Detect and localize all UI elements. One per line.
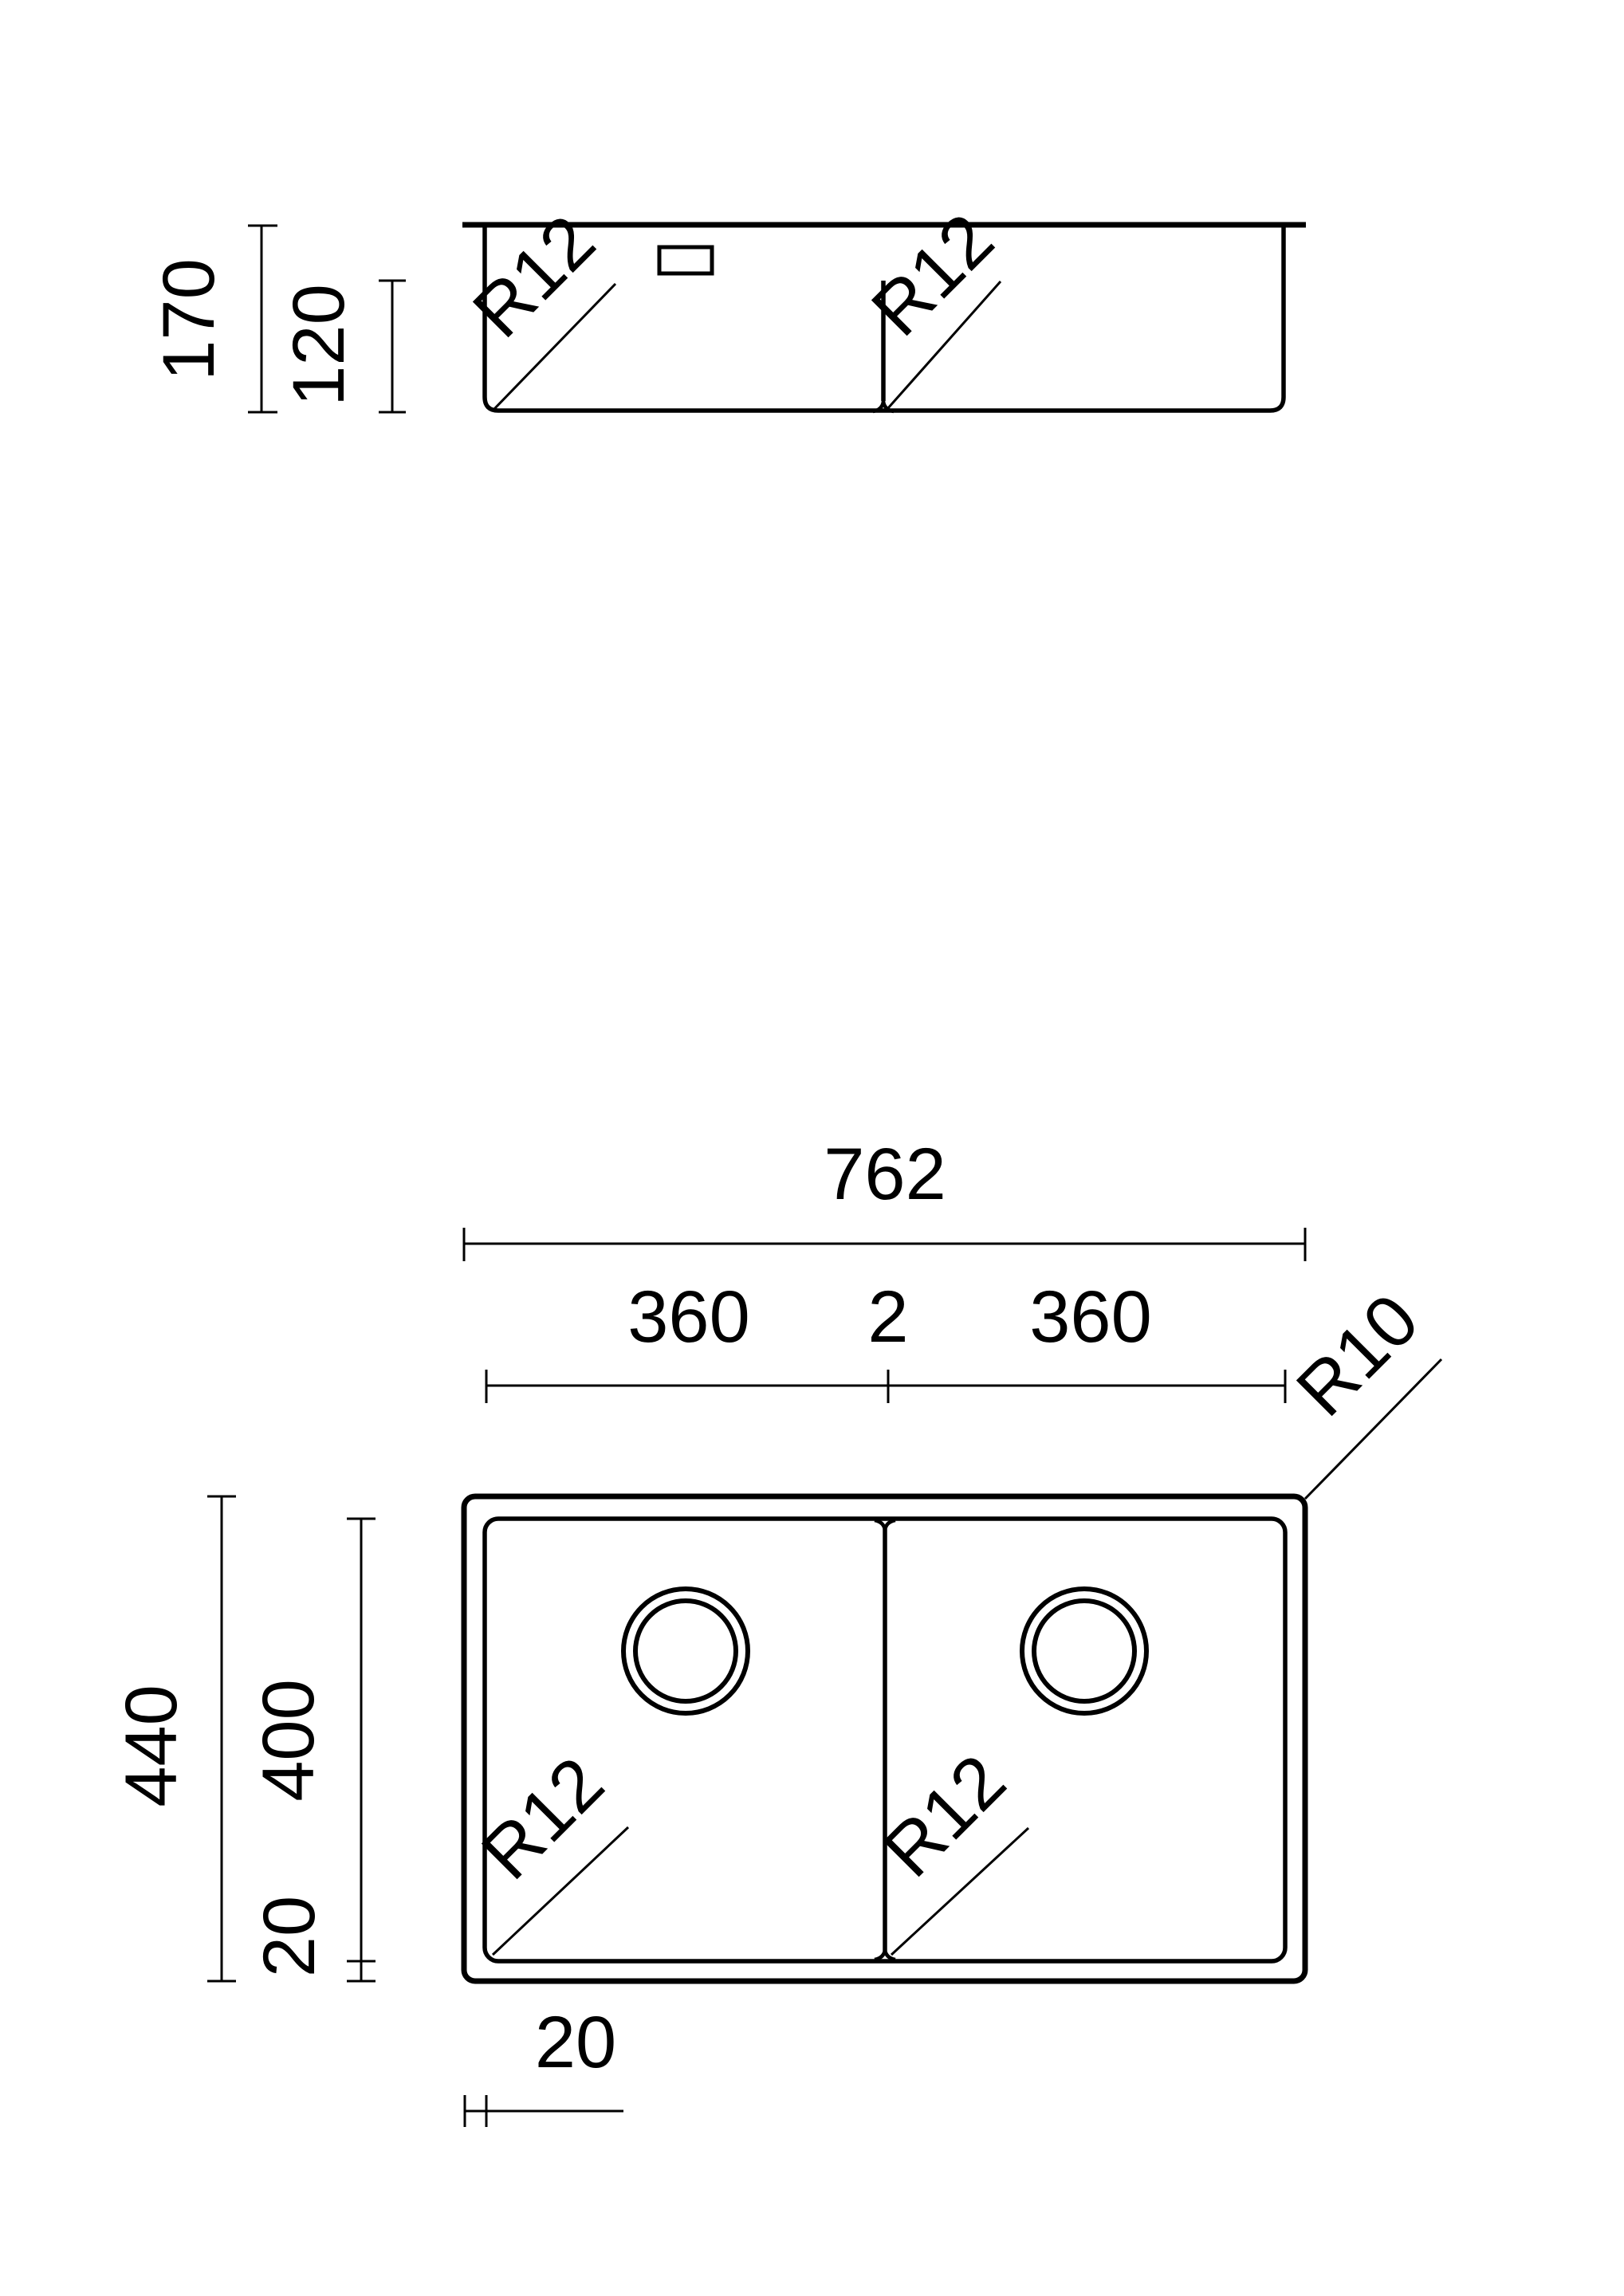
plan-divider-fillet-bottom-right bbox=[885, 1949, 895, 1960]
plan-radius-label-left: R12 bbox=[466, 1742, 619, 1894]
drain-right bbox=[1022, 1589, 1146, 1713]
technical-drawing-page: R12 R12 170 120 bbox=[0, 0, 1624, 2296]
rim-offset-left-label: 20 bbox=[535, 2002, 616, 2083]
dimension-bowl-widths: 360 2 360 bbox=[486, 1276, 1285, 1403]
dimension-depth-170: 170 bbox=[148, 226, 277, 412]
side-radius-label-right: R12 bbox=[856, 199, 1009, 351]
overflow-hole bbox=[659, 247, 712, 273]
plan-divider-fillet-top-right bbox=[885, 1520, 895, 1531]
dimension-overall-width-762: 762 bbox=[464, 1134, 1305, 1261]
bowl-depth-label: 400 bbox=[248, 1679, 329, 1802]
rim-offset-bottom-label: 20 bbox=[249, 1896, 330, 1977]
dimension-divider-height-120: 120 bbox=[278, 281, 406, 412]
outer-radius-label: R10 bbox=[1281, 1279, 1433, 1431]
side-view: R12 R12 170 120 bbox=[148, 199, 1306, 412]
depth-total-label: 170 bbox=[148, 258, 230, 381]
plan-view: R12 R12 R10 762 360 2 360 440 bbox=[111, 1134, 1441, 2127]
dimension-bowl-depth-400-20: 400 20 bbox=[248, 1519, 376, 1981]
divider-thickness-label: 2 bbox=[867, 1276, 908, 1358]
dimension-overall-depth-440: 440 bbox=[111, 1496, 236, 1981]
bowl-width-right-label: 360 bbox=[1029, 1276, 1152, 1358]
plan-radius-label-right: R12 bbox=[868, 1740, 1020, 1892]
sink-dimension-drawing: R12 R12 170 120 bbox=[0, 0, 1624, 2296]
divider-height-label: 120 bbox=[278, 284, 360, 407]
overall-depth-label: 440 bbox=[111, 1685, 192, 1807]
bowl-width-left-label: 360 bbox=[627, 1276, 750, 1358]
overall-width-label: 762 bbox=[824, 1134, 946, 1215]
dimension-rim-offset-left-20: 20 bbox=[464, 2002, 623, 2127]
drain-left bbox=[623, 1589, 748, 1713]
